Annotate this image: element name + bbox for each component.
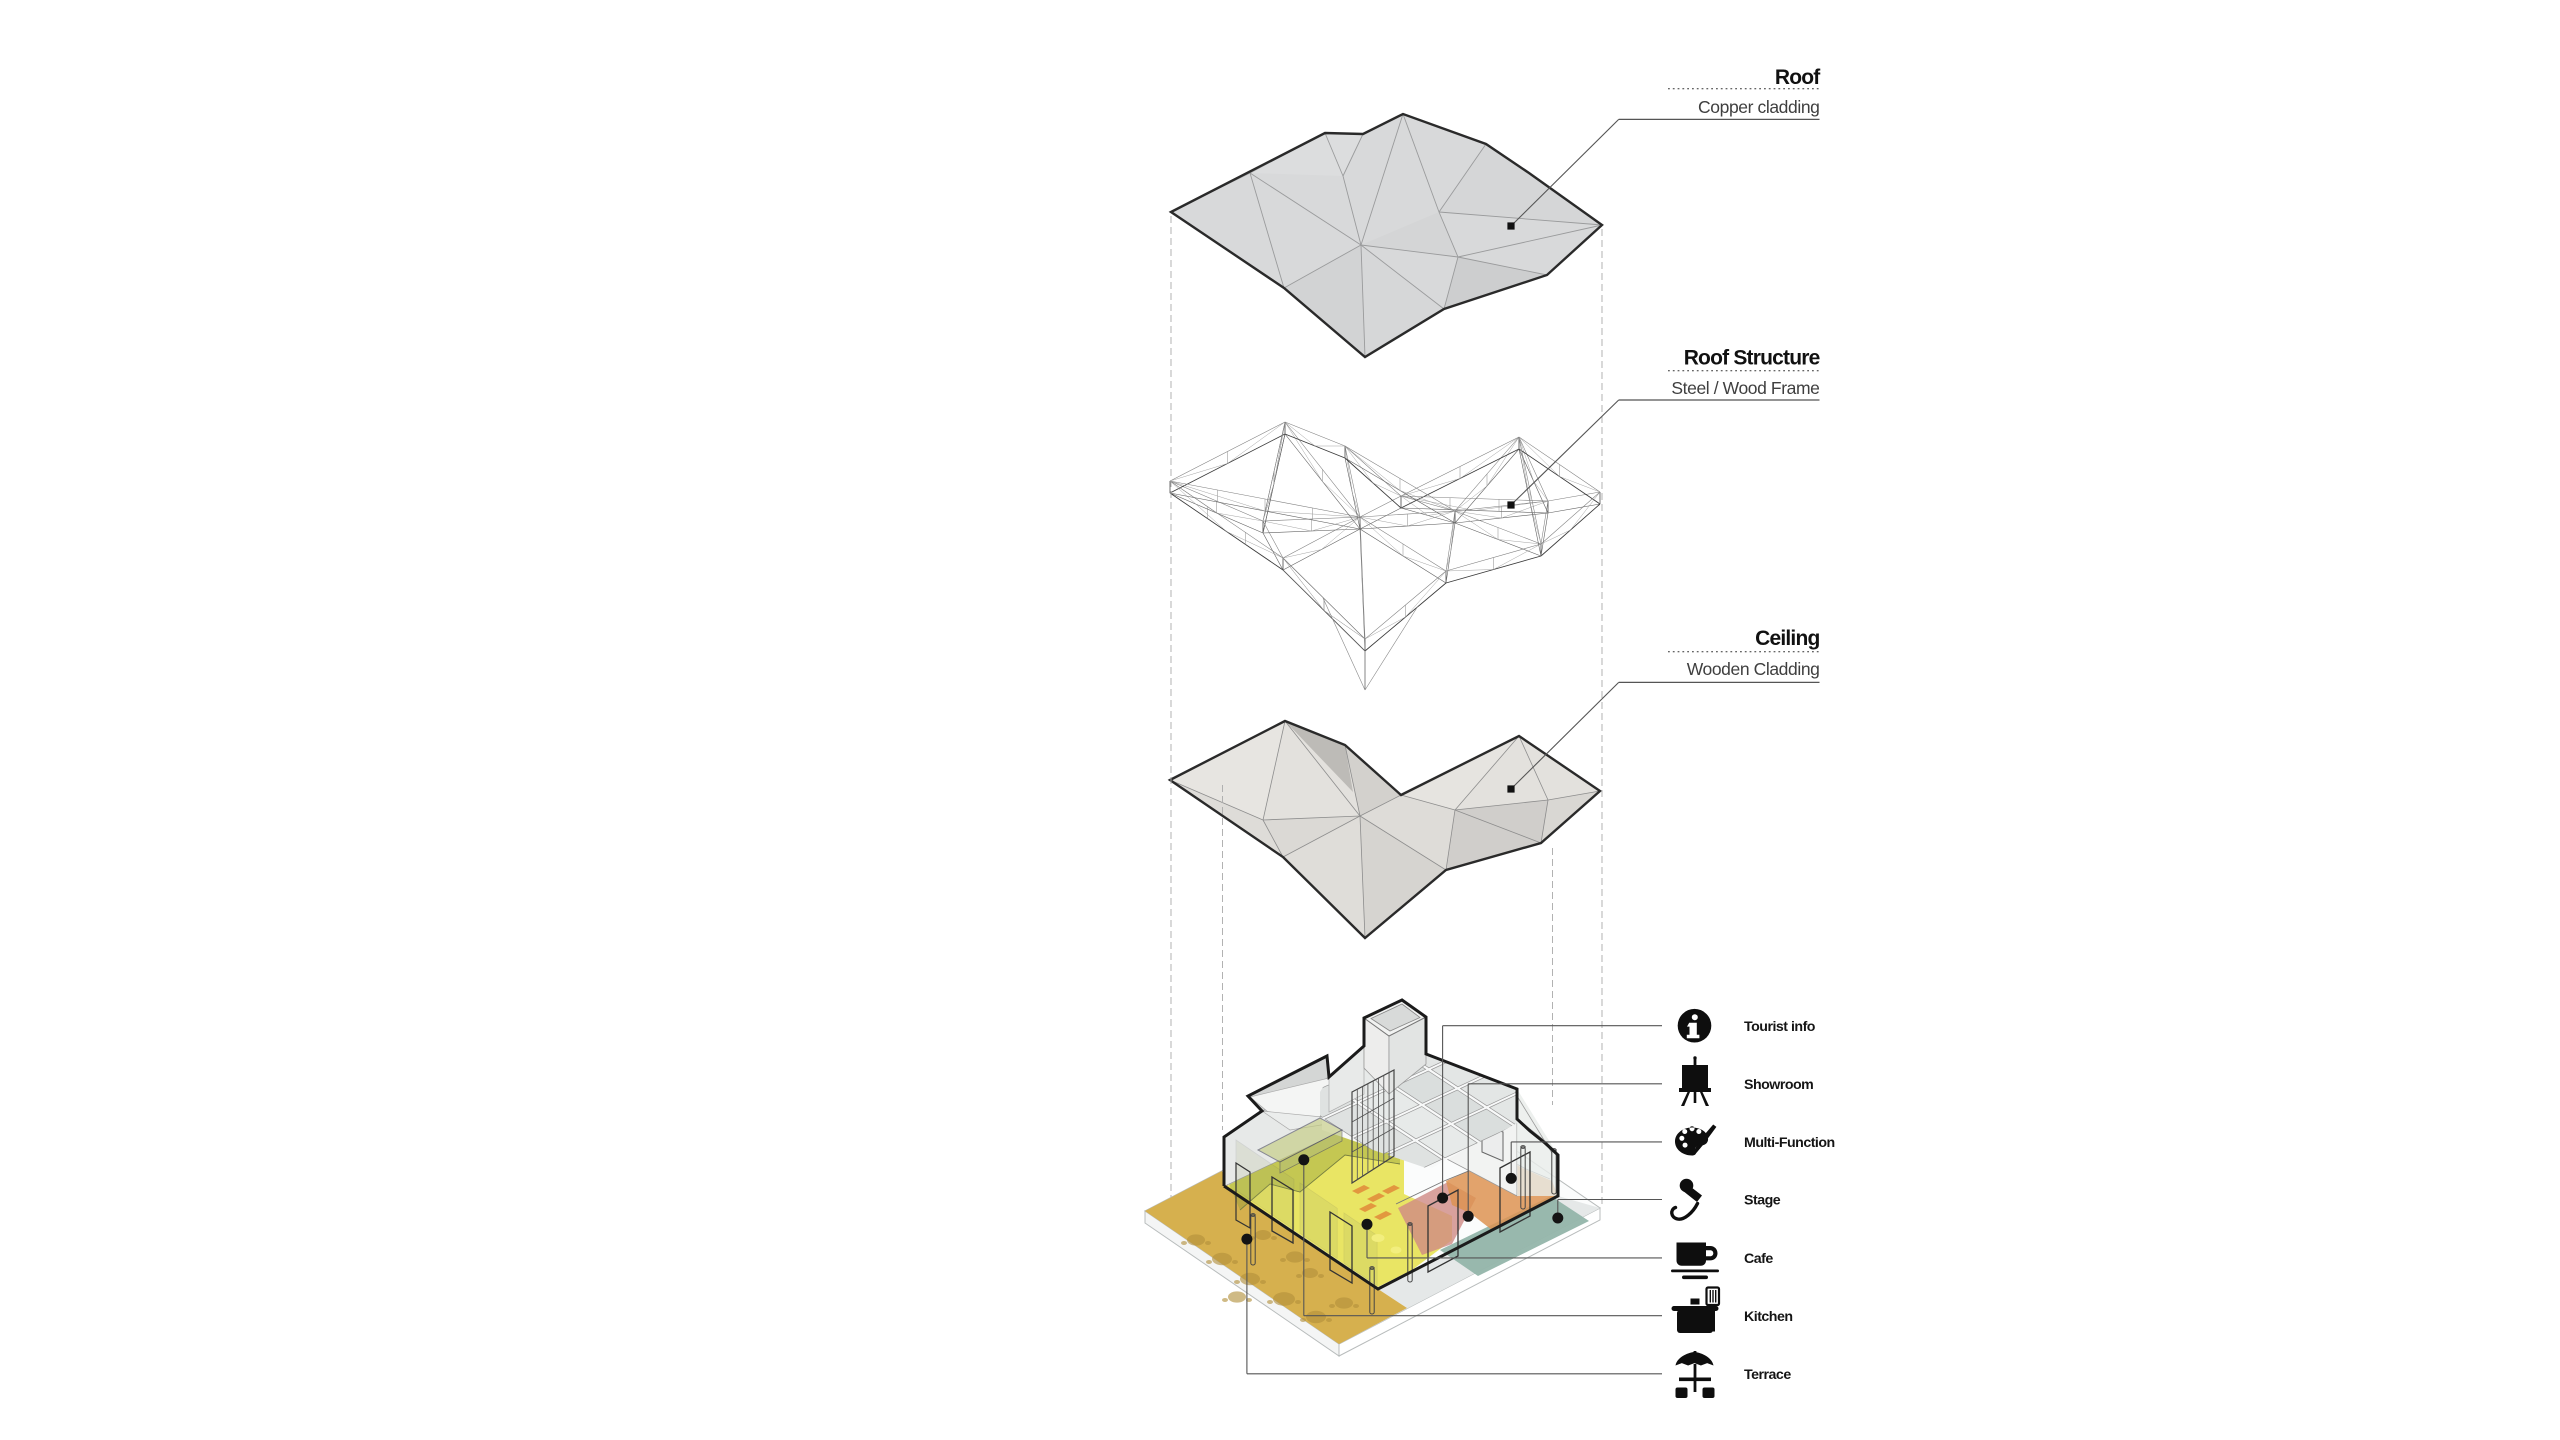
- svg-text:Terrace: Terrace: [1744, 1367, 1791, 1383]
- svg-text:Roof: Roof: [1775, 66, 1821, 89]
- svg-text:Tourist info: Tourist info: [1744, 1019, 1816, 1035]
- svg-text:Stage: Stage: [1744, 1193, 1781, 1209]
- svg-text:Cafe: Cafe: [1744, 1251, 1773, 1267]
- svg-text:Copper cladding: Copper cladding: [1698, 97, 1819, 117]
- svg-text:Steel / Wood Frame: Steel / Wood Frame: [1671, 378, 1819, 398]
- svg-text:Roof Structure: Roof Structure: [1684, 347, 1820, 370]
- svg-text:Showroom: Showroom: [1744, 1077, 1813, 1093]
- svg-text:Wooden Cladding: Wooden Cladding: [1687, 659, 1820, 679]
- svg-text:Kitchen: Kitchen: [1744, 1309, 1793, 1325]
- svg-text:Ceiling: Ceiling: [1755, 627, 1819, 650]
- svg-text:Multi-Function: Multi-Function: [1744, 1135, 1835, 1151]
